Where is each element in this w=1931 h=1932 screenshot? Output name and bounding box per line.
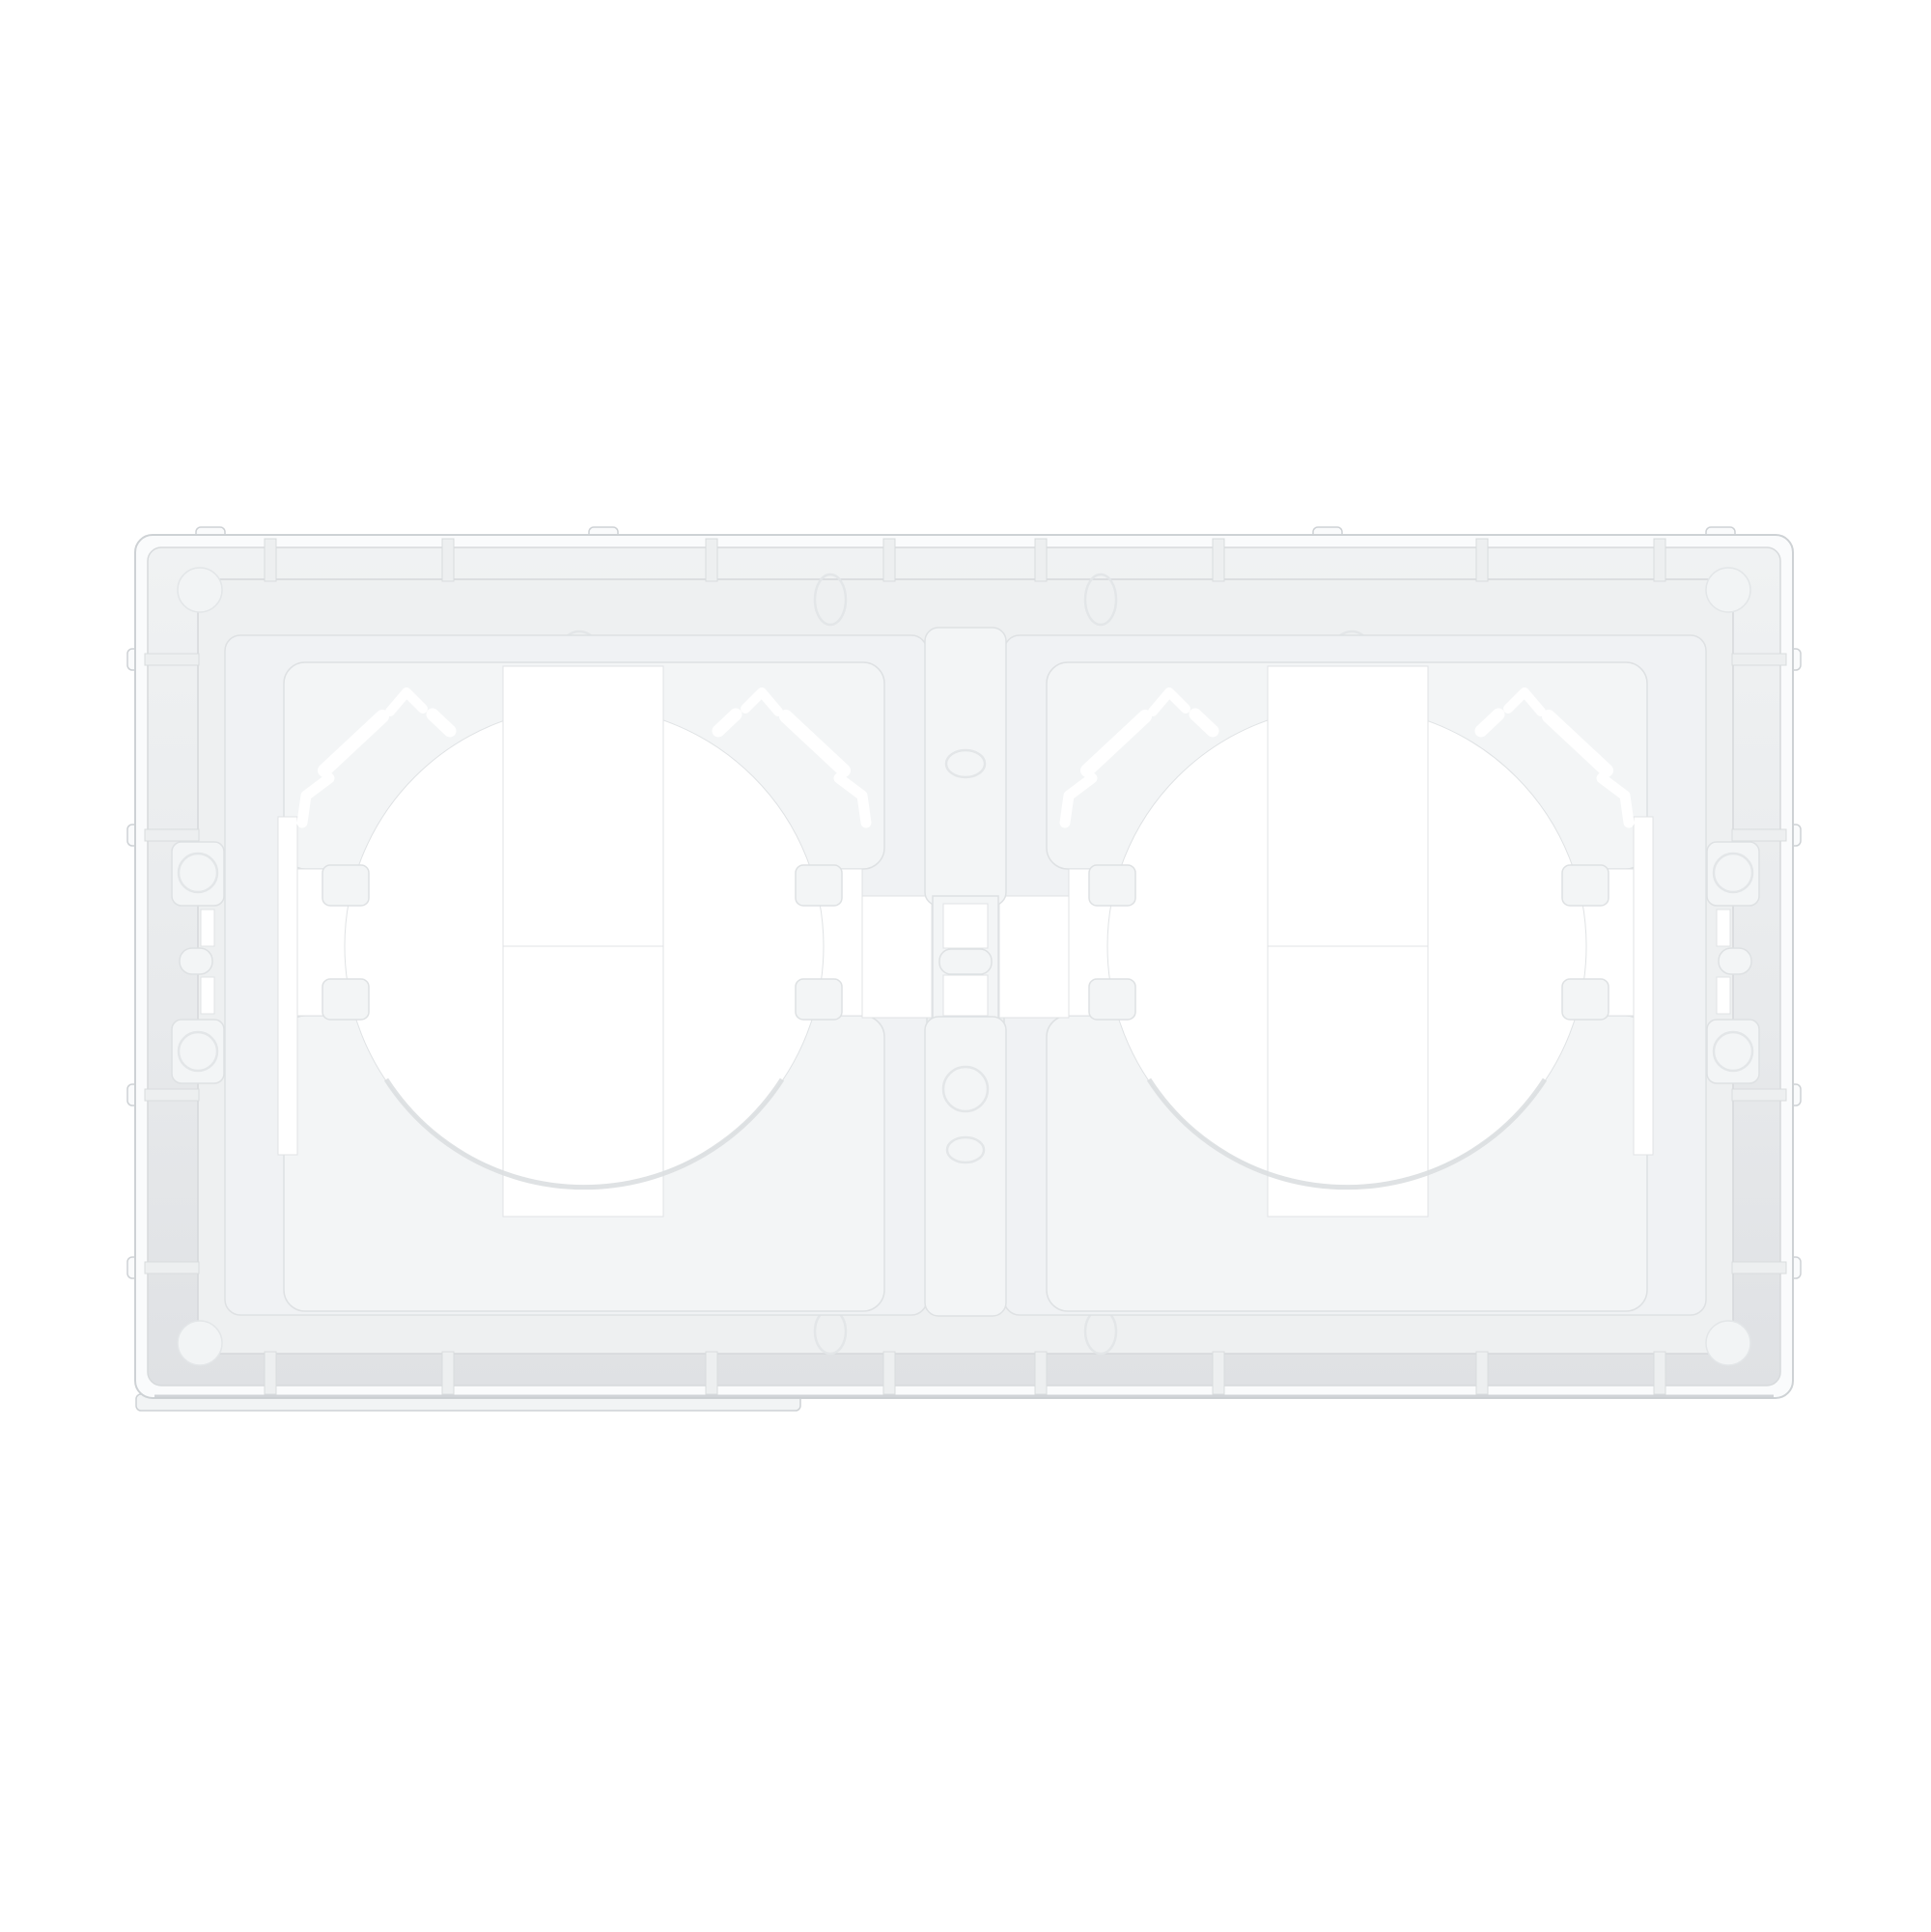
center-divider bbox=[925, 628, 1006, 1316]
divider-hole-lower bbox=[943, 975, 988, 1016]
divider-lower-tab bbox=[925, 1017, 1006, 1316]
wall-frame-back-svg bbox=[0, 0, 1931, 1931]
gang-left bbox=[225, 635, 932, 1315]
gang-right bbox=[999, 635, 1706, 1315]
divider-hole-upper bbox=[943, 904, 988, 948]
product-photo: Rear view of a white plastic two-gang el… bbox=[0, 0, 1931, 1931]
divider-stud bbox=[939, 949, 992, 974]
divider-upper-tab bbox=[925, 628, 1006, 906]
